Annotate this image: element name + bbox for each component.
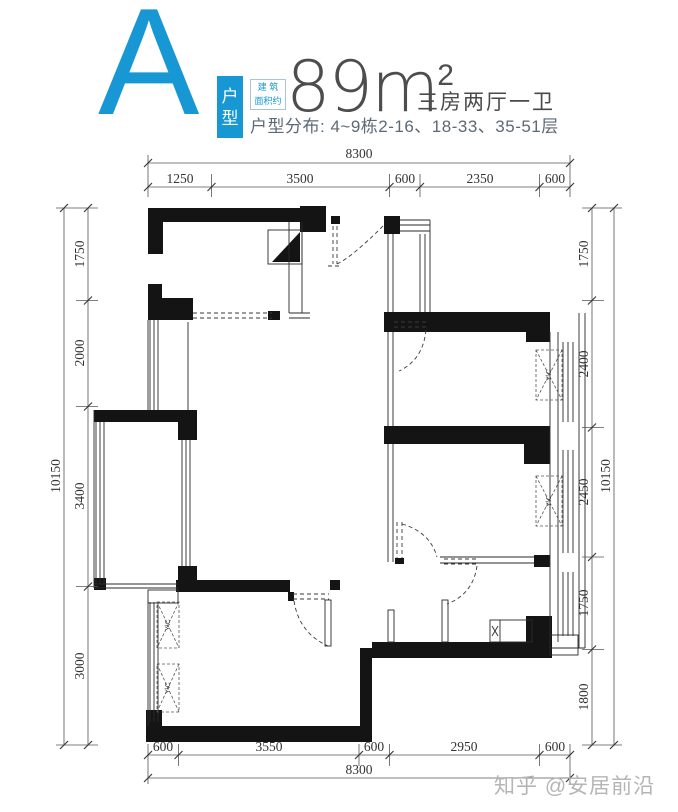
dim-right-seg-4: 1750 (576, 589, 591, 616)
appliance-fold (272, 232, 300, 262)
dim-bottom-seg-3: 600 (364, 739, 385, 754)
dim-left-seg-2: 2000 (72, 339, 87, 366)
wall (148, 208, 324, 222)
dim-right-seg-3: 2450 (576, 478, 591, 505)
dim-left-seg-4: 3000 (72, 652, 87, 679)
wall (524, 444, 550, 464)
floorplan-drawing: Y\C Y\C Y\C Y\C (0, 0, 678, 812)
dim-top-seg-5: 600 (545, 171, 566, 186)
wall (94, 410, 197, 422)
wall (372, 642, 552, 658)
door-hinge-block (330, 580, 340, 590)
wall (534, 555, 550, 567)
dim-bottom-seg-1: 600 (153, 739, 174, 754)
dim-top-seg-1: 1250 (167, 171, 194, 186)
wall (384, 426, 550, 444)
dim-top-total: 8300 (346, 146, 373, 161)
wall (148, 208, 163, 254)
door-hinge-block (288, 592, 294, 601)
dim-bottom-total: 8300 (346, 762, 373, 777)
wall (178, 566, 197, 588)
slider-end-cap (268, 311, 280, 320)
wall-stub (388, 610, 394, 642)
door-hinge-block (395, 558, 404, 564)
dim-left-seg-1: 1750 (72, 240, 87, 267)
kitchen-slider (193, 313, 272, 318)
ac-unit-label: Y\C (165, 682, 172, 694)
wall (300, 206, 326, 232)
dim-right-seg-2: 2400 (576, 350, 591, 377)
dim-witness-lines (56, 155, 622, 784)
dim-tick-marks (60, 159, 618, 782)
dim-right-seg-5: 1800 (576, 683, 591, 710)
ac-unit-box: Y\C (157, 664, 179, 712)
wall (148, 298, 193, 320)
entry-door-arc (337, 226, 383, 264)
dim-right-seg-1: 1750 (576, 240, 591, 267)
ac-unit-label: Y\C (165, 619, 172, 631)
dim-main-lines (64, 163, 614, 778)
bath-vanity-detail (492, 620, 500, 642)
wall (178, 422, 197, 440)
entry-door-leaf (328, 226, 342, 266)
dim-top-seg-4: 2350 (467, 171, 494, 186)
ac-unit-box: Y\C (157, 602, 179, 648)
master-door-arc (294, 601, 328, 646)
dim-bottom-seg-5: 600 (545, 739, 566, 754)
bath-vanity (490, 620, 532, 642)
dim-right-total: 10150 (598, 459, 613, 493)
dim-left-total: 10150 (48, 459, 63, 493)
window-end-cap (148, 590, 178, 603)
door-hinge-block (331, 216, 340, 224)
wall-stub (325, 600, 331, 646)
wall (526, 330, 550, 342)
dim-bottom-seg-4: 2950 (451, 739, 478, 754)
floorplan-page: A 户 型 建 筑 面积约 89m2 三房两厅一卫 户型分布: 4~9栋2-16… (0, 0, 678, 812)
dim-bottom-seg-2: 3550 (256, 739, 283, 754)
walls (94, 206, 552, 742)
watermark: 知乎 @安居前沿 (494, 770, 655, 800)
wall (384, 216, 400, 234)
ac-unit-label: Y\C (546, 369, 553, 381)
wall-stub (442, 600, 448, 642)
window-corner-step (550, 635, 578, 655)
dimension-lines (56, 155, 622, 784)
bedroom2-door-arc (402, 524, 437, 557)
bathroom-door-arc (447, 566, 477, 604)
hall-door-arc (399, 330, 426, 371)
dim-top-seg-2: 3500 (287, 171, 314, 186)
dim-top-seg-3: 600 (395, 171, 416, 186)
ac-unit-label: Y\C (546, 495, 553, 507)
dim-left-seg-3: 3400 (72, 482, 87, 509)
bedroom2-door-leaf (397, 522, 402, 558)
master-door-leaf (293, 594, 329, 599)
